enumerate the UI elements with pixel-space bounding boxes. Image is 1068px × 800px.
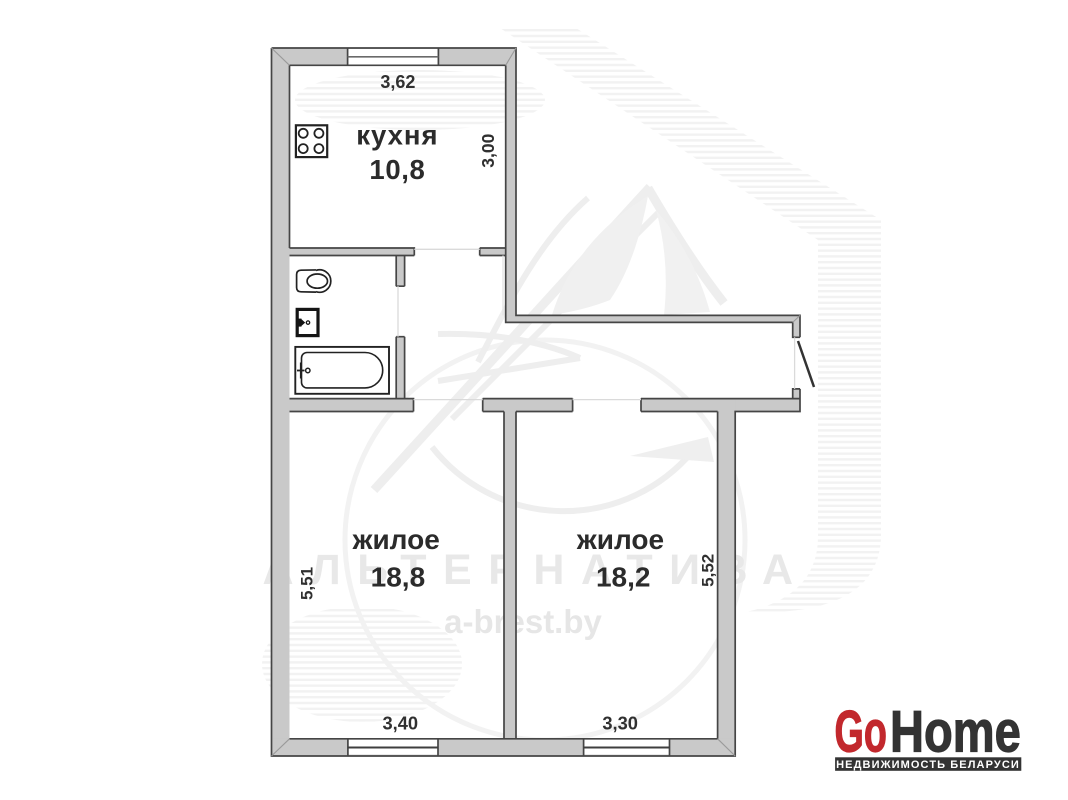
svg-text:18,2: 18,2 xyxy=(596,561,651,592)
svg-text:5,52: 5,52 xyxy=(699,554,718,587)
svg-text:жилое: жилое xyxy=(576,524,664,555)
svg-text:5,51: 5,51 xyxy=(298,567,317,600)
svg-text:Home: Home xyxy=(890,700,1021,765)
svg-text:18,8: 18,8 xyxy=(371,561,426,592)
svg-text:3,00: 3,00 xyxy=(478,133,498,167)
svg-text:НЕДВИЖИМОСТЬ БЕЛАРУСИ: НЕДВИЖИМОСТЬ БЕЛАРУСИ xyxy=(836,759,1020,771)
svg-text:Go: Go xyxy=(835,699,887,764)
svg-text:10,8: 10,8 xyxy=(369,154,425,185)
svg-text:жилое: жилое xyxy=(352,524,440,555)
svg-text:кухня: кухня xyxy=(356,120,438,151)
svg-text:3,40: 3,40 xyxy=(383,713,419,734)
svg-text:3,30: 3,30 xyxy=(602,713,638,734)
svg-text:a-brest.by: a-brest.by xyxy=(444,603,602,640)
svg-text:3,62: 3,62 xyxy=(380,72,415,92)
